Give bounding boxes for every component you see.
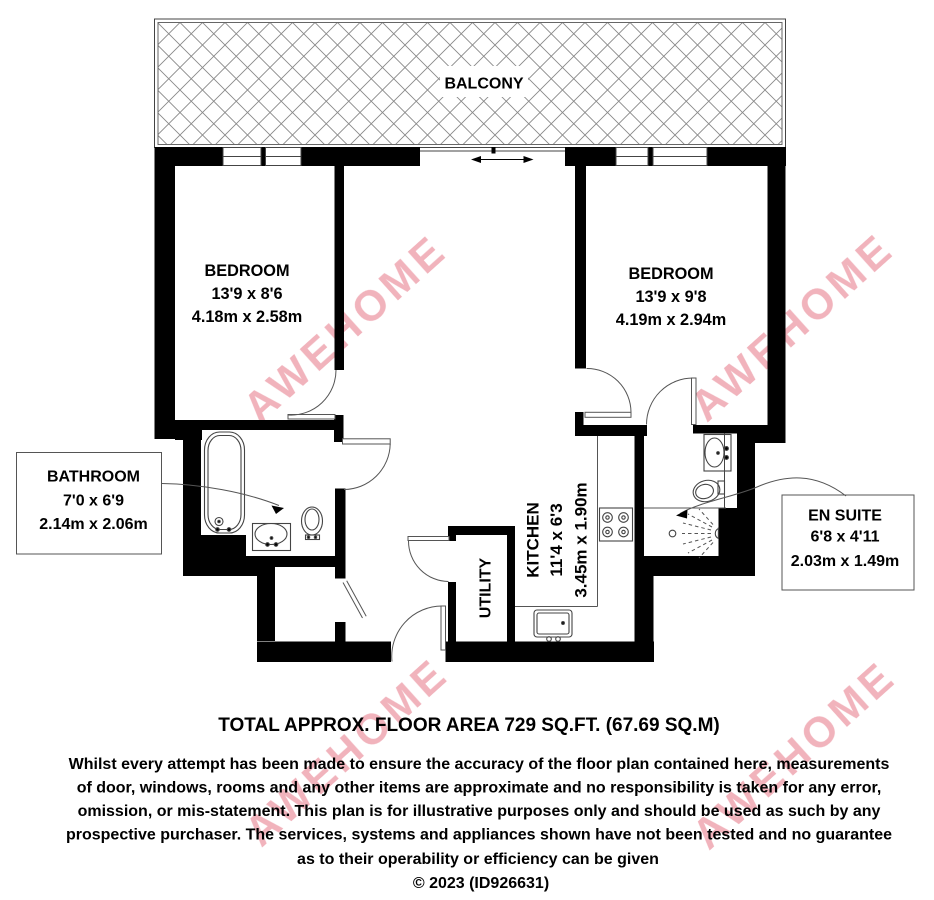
svg-text:UTILITY: UTILITY xyxy=(478,557,495,618)
svg-text:7'0 x 6'9: 7'0 x 6'9 xyxy=(63,493,124,510)
svg-text:EN SUITE: EN SUITE xyxy=(808,508,882,525)
svg-text:BATHROOM: BATHROOM xyxy=(47,469,140,486)
svg-text:4.19m x 2.94m: 4.19m x 2.94m xyxy=(616,311,726,329)
svg-text:3.45m x 1.90m: 3.45m x 1.90m xyxy=(572,482,591,597)
svg-text:TOTAL APPROX. FLOOR AREA 729 S: TOTAL APPROX. FLOOR AREA 729 SQ.FT. (67.… xyxy=(218,715,719,736)
svg-text:© 2023 (ID926631): © 2023 (ID926631) xyxy=(413,875,549,892)
svg-text:11'4 x 6'3: 11'4 x 6'3 xyxy=(547,503,566,576)
svg-text:KITCHEN: KITCHEN xyxy=(524,502,543,578)
svg-text:2.14m x 2.06m: 2.14m x 2.06m xyxy=(39,516,148,533)
svg-text:13'9 x 9'8: 13'9 x 9'8 xyxy=(635,288,706,306)
svg-text:4.18m x 2.58m: 4.18m x 2.58m xyxy=(192,308,302,326)
svg-text:2.03m x 1.49m: 2.03m x 1.49m xyxy=(791,553,900,570)
svg-text:prospective purchaser. The ser: prospective purchaser. The services, sys… xyxy=(66,827,892,844)
svg-text:13'9 x 8'6: 13'9 x 8'6 xyxy=(211,285,282,303)
svg-text:AWEHOME: AWEHOME xyxy=(235,226,457,432)
svg-text:BALCONY: BALCONY xyxy=(444,76,523,93)
svg-text:BEDROOM: BEDROOM xyxy=(628,265,713,283)
svg-text:as to their operability or eff: as to their operability or efficiency ca… xyxy=(297,851,659,868)
svg-text:BEDROOM: BEDROOM xyxy=(204,262,289,280)
svg-text:AWEHOME: AWEHOME xyxy=(237,650,459,856)
svg-text:6'8 x 4'11: 6'8 x 4'11 xyxy=(810,529,879,546)
